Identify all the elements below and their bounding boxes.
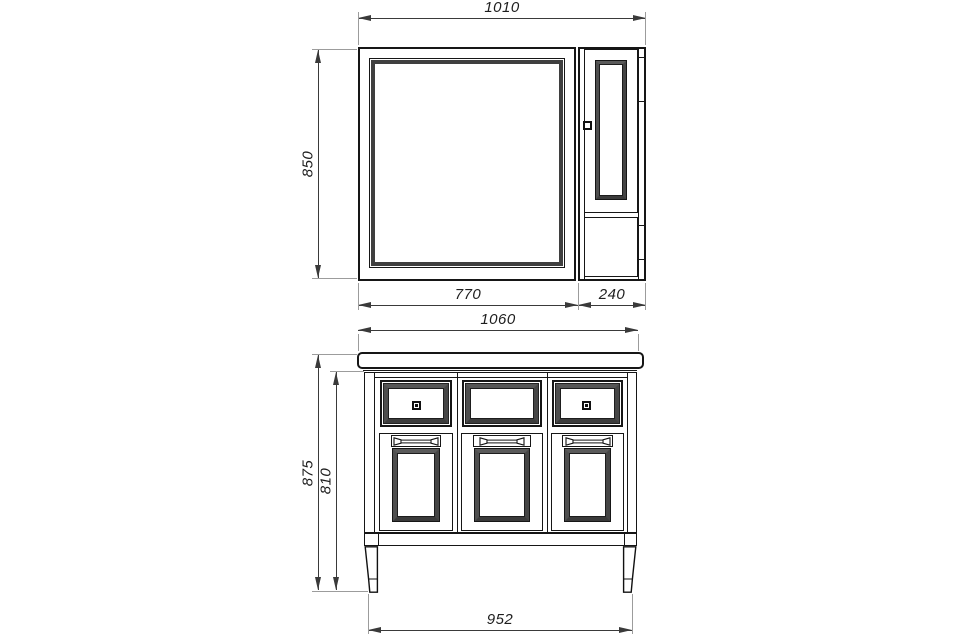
arrowhead-right-icon	[625, 327, 638, 333]
open-shelf	[584, 217, 638, 277]
drawer-knob-right	[582, 401, 591, 410]
dim-mirror-height: 850	[318, 50, 319, 278]
shelf-pin-mark	[639, 225, 646, 226]
shelf-pin-mark	[639, 57, 646, 58]
dimension-line	[318, 50, 319, 278]
arrowhead-left-icon	[368, 627, 381, 633]
door-panel-bevel	[565, 449, 610, 521]
dim-mirror-width: 770	[358, 305, 578, 306]
plinth-joint-line	[624, 533, 625, 546]
extension-line	[312, 591, 368, 592]
mirror-bezel	[371, 60, 563, 266]
shelf-pin-mark	[639, 259, 646, 260]
door-panel-bevel	[596, 61, 626, 199]
extension-line	[368, 594, 369, 634]
extension-line	[632, 594, 633, 634]
side-cabinet-door-knob	[583, 121, 592, 130]
dim-top-width: 1060	[358, 330, 638, 331]
dimension-line	[336, 372, 337, 590]
dim-label: 875	[300, 459, 317, 486]
drawer-knob-left	[412, 401, 421, 410]
arrowhead-left-icon	[358, 15, 371, 21]
plinth-joint-line	[378, 533, 379, 546]
knob-center	[415, 404, 418, 407]
bar-handle-icon	[393, 437, 439, 446]
dim-label: 1060	[480, 311, 515, 328]
leg-right	[622, 546, 637, 593]
extension-line	[312, 278, 357, 279]
dim-total-width: 1010	[358, 18, 646, 19]
arrowhead-down-icon	[333, 577, 339, 590]
arrowhead-up-icon	[315, 355, 321, 368]
dim-label: 810	[318, 468, 335, 495]
dim-label: 770	[455, 286, 482, 303]
dim-label: 1010	[484, 0, 519, 16]
extension-line	[358, 12, 359, 45]
drawer-bevel	[466, 384, 538, 423]
arrowhead-right-icon	[619, 627, 632, 633]
dimension-line	[358, 305, 578, 306]
dim-label: 850	[300, 151, 317, 178]
cabinet-stile-line	[638, 47, 639, 281]
knob-center	[585, 404, 588, 407]
plinth-rail	[364, 533, 637, 546]
drawer-middle-false-front	[462, 380, 542, 427]
arrowhead-up-icon	[333, 372, 339, 385]
body-stile-line	[374, 372, 375, 533]
dim-body-height: 810	[336, 372, 337, 590]
dim-label: 952	[487, 611, 514, 628]
arrowhead-left-icon	[358, 302, 371, 308]
dim-base-width: 952	[368, 630, 632, 631]
body-stile-line	[627, 372, 628, 533]
side-cabinet-door-panel	[595, 60, 627, 200]
extension-line	[645, 283, 646, 310]
bar-handle-icon	[565, 437, 611, 446]
body-stile-line	[547, 372, 548, 533]
door-panel-left	[392, 448, 440, 522]
door-handle-recess-middle	[473, 435, 531, 447]
door-panel-bevel	[475, 449, 529, 521]
arrowhead-down-icon	[315, 577, 321, 590]
door-panel-bevel	[393, 449, 439, 521]
arrowhead-left-icon	[578, 302, 591, 308]
extension-line	[358, 283, 359, 310]
bar-handle-icon	[479, 437, 525, 446]
dim-side-cabinet-width: 240	[578, 305, 646, 306]
door-handle-recess-right	[562, 435, 613, 447]
arrowhead-up-icon	[315, 50, 321, 63]
body-stile-line	[457, 372, 458, 533]
countertop	[357, 352, 644, 369]
door-handle-recess-left	[391, 435, 441, 447]
technical-drawing: 1010 850	[0, 0, 960, 640]
countertop-edge-line	[363, 370, 637, 371]
leg-left	[364, 546, 379, 593]
extension-line	[358, 334, 359, 351]
dimension-line	[368, 630, 632, 631]
extension-line	[330, 371, 364, 372]
dimension-line	[358, 330, 638, 331]
mirror-glass	[375, 64, 559, 262]
arrowhead-right-icon	[565, 302, 578, 308]
door-panel-middle	[474, 448, 530, 522]
extension-line	[312, 49, 357, 50]
dimension-line	[358, 18, 646, 19]
extension-line	[312, 354, 357, 355]
dim-label: 240	[599, 286, 626, 303]
extension-line	[645, 12, 646, 45]
extension-line	[578, 283, 579, 310]
extension-line	[638, 334, 639, 351]
arrowhead-left-icon	[358, 327, 371, 333]
shelf-pin-mark	[639, 101, 646, 102]
door-panel-right	[564, 448, 611, 522]
arrowhead-down-icon	[315, 265, 321, 278]
body-rail-line	[374, 377, 627, 378]
